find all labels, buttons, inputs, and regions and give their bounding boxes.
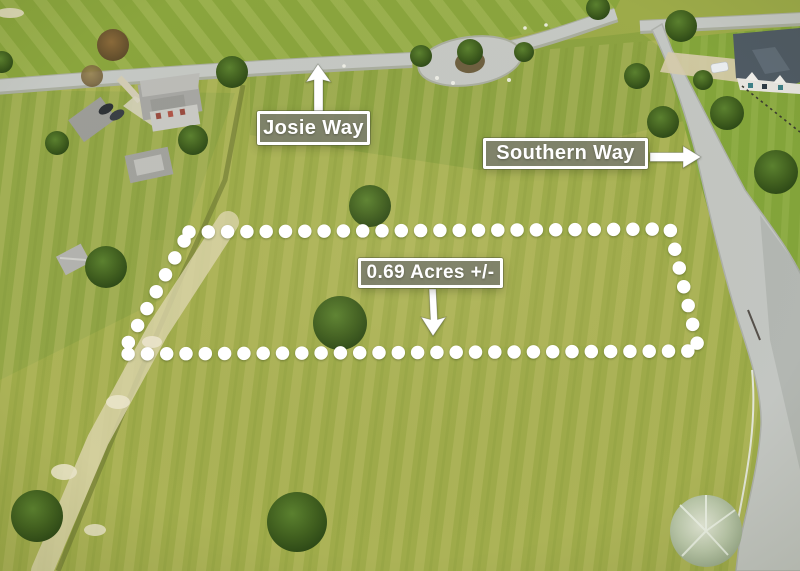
street-label-josie-way-text: Josie Way <box>263 117 364 140</box>
street-label-southern-way-text: Southern Way <box>496 142 635 165</box>
lot-acreage-label-text: 0.69 Acres +/- <box>367 262 495 284</box>
aerial-photo: Josie Way Southern Way 0.69 Acres +/- <box>0 0 800 571</box>
street-label-josie-way: Josie Way <box>257 111 370 145</box>
street-label-southern-way: Southern Way <box>483 138 648 169</box>
lot-acreage-label: 0.69 Acres +/- <box>358 258 503 288</box>
